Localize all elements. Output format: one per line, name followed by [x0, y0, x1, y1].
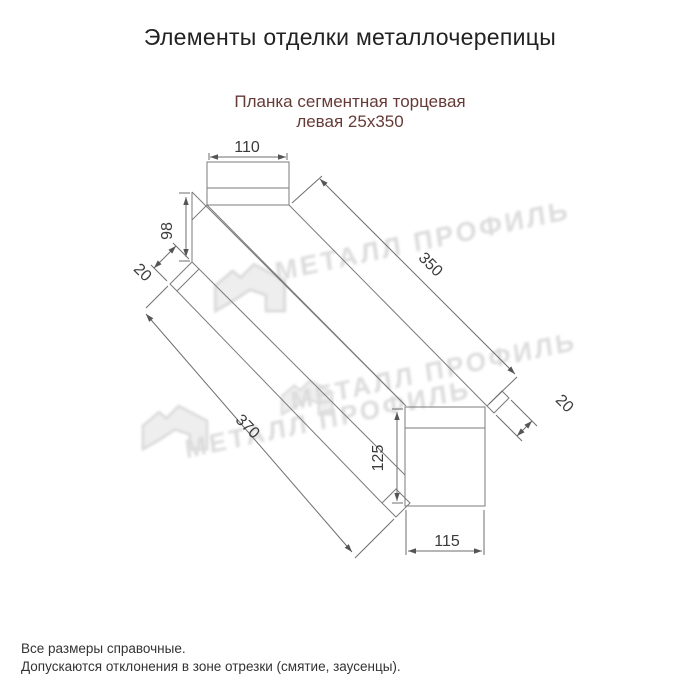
dim-label-bottom-end-width: 115: [434, 533, 460, 550]
dim-label-length-right: 350: [415, 249, 446, 280]
dim-label-end-face-height: 98: [159, 222, 176, 240]
dim-label-hem-right: 20: [552, 392, 577, 417]
dimension-lines: [146, 153, 537, 558]
note-line2: Допускаются отклонения в зоне отрезки (с…: [21, 659, 401, 674]
page: { "header": { "title": "Элементы отделки…: [0, 0, 700, 700]
dim-label-top-flange-width: 110: [234, 139, 260, 156]
dim-label-length-left: 370: [232, 411, 263, 442]
dim-label-bottom-end-height: 125: [370, 445, 387, 472]
dim-label-hem-left: 20: [130, 261, 155, 286]
note-line1: Все размеры справочные.: [21, 641, 186, 656]
part-outline: [170, 162, 509, 517]
technical-drawing: 110 98 20 350 20 370 125 115: [0, 0, 700, 700]
